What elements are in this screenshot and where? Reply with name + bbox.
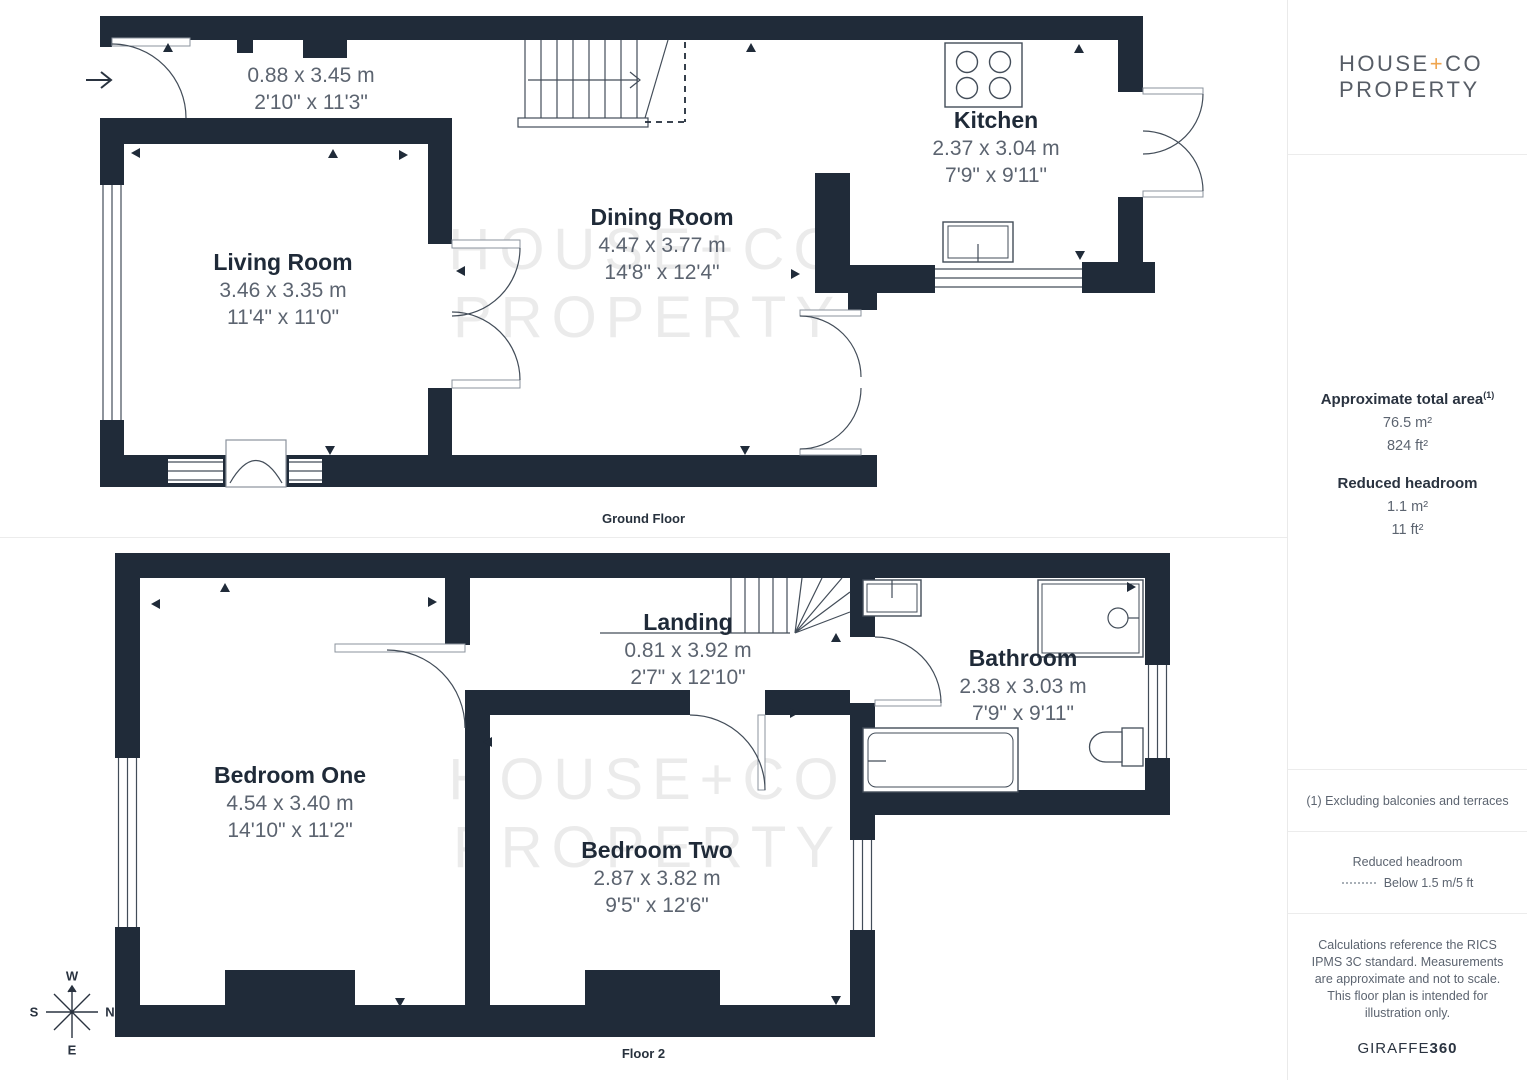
room-label-living-room: Living Room 3.46 x 3.35 m 11'4" x 11'0"	[213, 248, 352, 331]
giraffe360-logo: GIRAFFE360	[1357, 1040, 1457, 1057]
brand-logo-line2: PROPERTY	[1339, 77, 1480, 103]
living-dining-double-door	[428, 240, 520, 388]
bathtub	[863, 728, 1018, 792]
room-dimensions-metric: 2.38 x 3.03 m	[959, 673, 1086, 700]
room-label-dining-room: Dining Room 4.47 x 3.77 m 14'8" x 12'4"	[590, 203, 733, 286]
room-label-landing: Landing 0.81 x 3.92 m 2'7" x 12'10"	[624, 608, 751, 691]
room-dimensions-metric: 0.88 x 3.45 m	[247, 62, 374, 89]
compass-north-label: N	[105, 1005, 114, 1020]
dashed-line-icon	[1342, 882, 1376, 884]
entry-arrow-icon	[86, 72, 111, 88]
room-dimensions-imperial: 7'9" x 9'11"	[932, 162, 1059, 189]
room-label-bedroom-one: Bedroom One 4.54 x 3.40 m 14'10" x 11'2"	[214, 761, 366, 844]
entrance-door	[112, 38, 190, 118]
staircase-ground	[518, 40, 685, 127]
room-name: Kitchen	[932, 106, 1059, 135]
total-area-imperial: 824 ft²	[1387, 435, 1428, 458]
reduced-headroom-boundary	[645, 42, 685, 122]
bedroom-two-door	[690, 715, 765, 790]
legend-title: Reduced headroom	[1353, 855, 1463, 869]
room-dimensions-imperial: 2'7" x 12'10"	[624, 664, 751, 691]
area-stats: Approximate total area(1) 76.5 m² 824 ft…	[1288, 155, 1527, 770]
plus-icon: +	[1430, 51, 1445, 76]
floorplan-canvas: HOUSE+CO PROPERTY HOUSE+CO PROPERTY	[0, 0, 1287, 1080]
bedroom-one-door	[335, 644, 465, 728]
room-dimensions-imperial: 7'9" x 9'11"	[959, 700, 1086, 727]
room-label-bathroom: Bathroom 2.38 x 3.03 m 7'9" x 9'11"	[959, 644, 1086, 727]
compass-west-label: W	[66, 969, 78, 984]
room-name: Bathroom	[959, 644, 1086, 673]
floor-caption-ground: Ground Floor	[0, 511, 1287, 526]
footnote: (1) Excluding balconies and terraces	[1288, 770, 1527, 832]
floorplan-page: HOUSE+CO PROPERTY HOUSE+CO PROPERTY	[0, 0, 1527, 1080]
stove	[945, 43, 1022, 107]
room-dimensions-imperial: 9'5" x 12'6"	[581, 892, 733, 919]
room-dimensions-metric: 0.81 x 3.92 m	[624, 637, 751, 664]
room-dimensions-metric: 4.47 x 3.77 m	[590, 232, 733, 259]
chimney-bedroom-two	[585, 970, 720, 1005]
fireplace	[226, 440, 286, 487]
room-name: Bedroom One	[214, 761, 366, 790]
reduced-headroom-legend: Reduced headroom Below 1.5 m/5 ft	[1288, 832, 1527, 914]
room-name: Bedroom Two	[581, 836, 733, 865]
bathroom-door	[850, 637, 941, 706]
floor-caption-floor-2: Floor 2	[0, 1046, 1287, 1061]
room-dimensions-metric: 2.87 x 3.82 m	[581, 865, 733, 892]
room-dimensions-imperial: 14'8" x 12'4"	[590, 259, 733, 286]
total-area-heading: Approximate total area(1)	[1321, 383, 1495, 412]
footnote-ref: (1)	[1483, 390, 1494, 400]
legend-item: Below 1.5 m/5 ft	[1384, 876, 1474, 890]
kitchen-sink	[943, 222, 1013, 262]
room-name: Dining Room	[590, 203, 733, 232]
room-dimensions-imperial: 2'10" x 11'3"	[247, 89, 374, 116]
reduced-headroom-imperial: 11 ft²	[1392, 519, 1424, 542]
reduced-headroom-metric: 1.1 m²	[1387, 496, 1428, 519]
chimney-bedroom-one	[225, 970, 355, 1005]
room-dimensions-metric: 2.37 x 3.04 m	[932, 135, 1059, 162]
total-area-metric: 76.5 m²	[1383, 412, 1432, 435]
room-name: Living Room	[213, 248, 352, 277]
room-name: Landing	[624, 608, 751, 637]
room-label-bedroom-two: Bedroom Two 2.87 x 3.82 m 9'5" x 12'6"	[581, 836, 733, 919]
dining-french-doors	[800, 310, 877, 455]
room-dimensions-imperial: 14'10" x 11'2"	[214, 817, 366, 844]
toilet	[1090, 728, 1144, 766]
compass-east-label: E	[68, 1043, 77, 1058]
reduced-headroom-heading: Reduced headroom	[1337, 472, 1477, 496]
room-dimensions-imperial: 11'4" x 11'0"	[213, 304, 352, 331]
brand-logo: HOUSE+CO PROPERTY	[1288, 0, 1527, 155]
bathroom-sink	[863, 580, 921, 616]
room-label-hallway: 0.88 x 3.45 m 2'10" x 11'3"	[247, 62, 374, 116]
floor-divider-line	[0, 537, 1287, 538]
room-label-kitchen: Kitchen 2.37 x 3.04 m 7'9" x 9'11"	[932, 106, 1059, 189]
room-dimensions-metric: 4.54 x 3.40 m	[214, 790, 366, 817]
compass-south-label: S	[30, 1005, 39, 1020]
disclaimer-section: Calculations reference the RICS IPMS 3C …	[1288, 914, 1527, 1079]
disclaimer-text: Calculations reference the RICS IPMS 3C …	[1309, 937, 1507, 1022]
compass-icon: W S N E	[20, 950, 124, 1074]
kitchen-french-doors	[1118, 88, 1203, 197]
brand-logo-line1: HOUSE+CO	[1339, 51, 1483, 77]
room-dimensions-metric: 3.46 x 3.35 m	[213, 277, 352, 304]
info-sidebar: HOUSE+CO PROPERTY Approximate total area…	[1287, 0, 1527, 1080]
